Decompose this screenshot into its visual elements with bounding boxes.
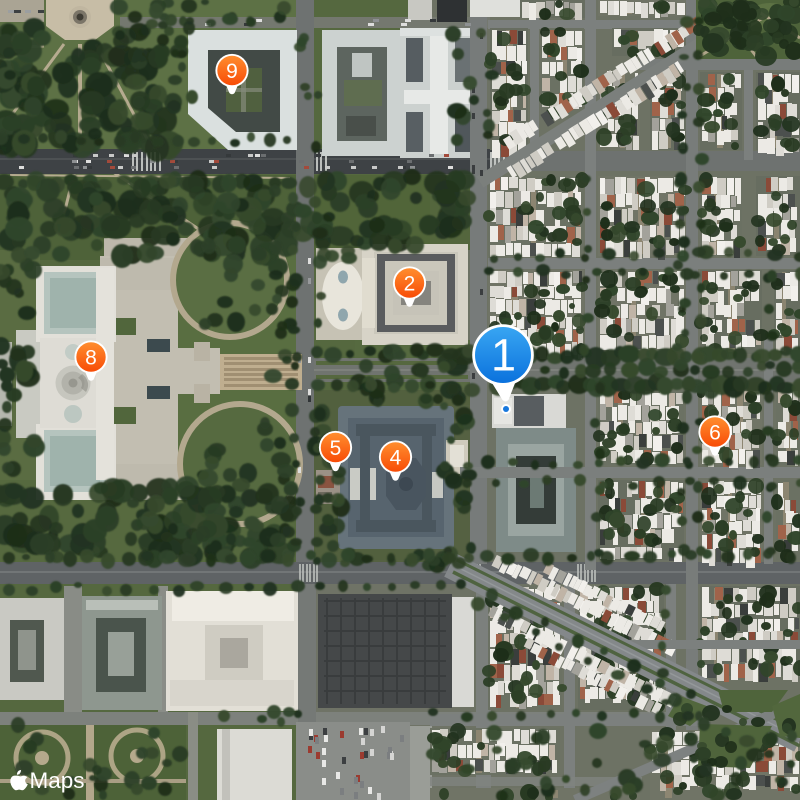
svg-text:5: 5 bbox=[330, 437, 342, 460]
svg-text:2: 2 bbox=[404, 273, 416, 296]
svg-text:9: 9 bbox=[226, 60, 238, 83]
svg-text:4: 4 bbox=[390, 447, 402, 470]
svg-text:6: 6 bbox=[709, 422, 721, 445]
svg-text:Maps: Maps bbox=[30, 768, 85, 793]
svg-text:1: 1 bbox=[491, 330, 516, 381]
svg-text:8: 8 bbox=[85, 347, 97, 370]
